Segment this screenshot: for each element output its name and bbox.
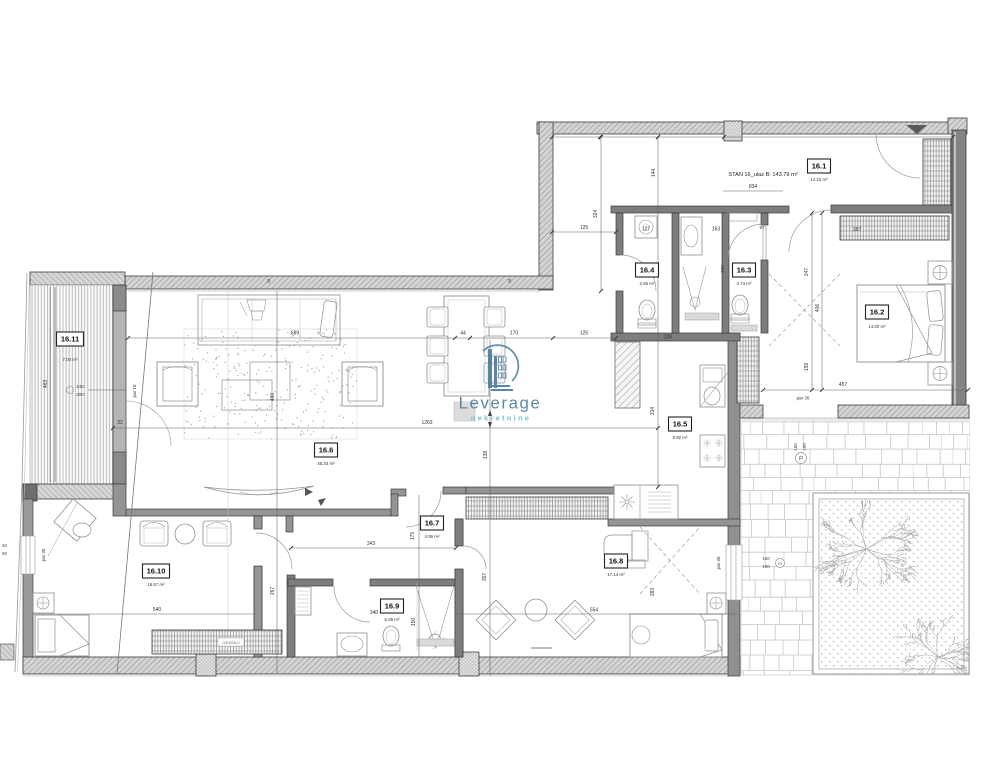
- svg-text:267: 267: [270, 587, 276, 596]
- svg-text:230: 230: [664, 335, 673, 341]
- svg-text:44: 44: [460, 331, 466, 337]
- svg-text:16.57 m²: 16.57 m²: [147, 582, 165, 587]
- svg-text:406: 406: [815, 304, 821, 313]
- svg-text:45.33 m²: 45.33 m²: [317, 461, 335, 466]
- svg-text:387: 387: [853, 227, 862, 233]
- svg-text:1263: 1263: [421, 420, 432, 426]
- svg-text:90: 90: [2, 551, 8, 556]
- svg-text:314: 314: [650, 407, 656, 416]
- svg-text:16.7: 16.7: [425, 519, 440, 528]
- svg-text:14.22 m²: 14.22 m²: [810, 177, 828, 182]
- svg-text:16.9: 16.9: [385, 602, 400, 611]
- svg-text:247: 247: [804, 268, 810, 277]
- svg-text:160: 160: [793, 443, 798, 451]
- svg-text:125: 125: [580, 225, 589, 231]
- svg-text:16.6: 16.6: [319, 446, 334, 455]
- svg-text:324: 324: [593, 210, 599, 219]
- svg-text:28: 28: [266, 278, 271, 283]
- svg-text:357: 357: [482, 573, 488, 582]
- svg-text:283: 283: [650, 588, 656, 597]
- svg-text:7.04 m²: 7.04 m²: [63, 357, 78, 362]
- svg-text:32: 32: [117, 420, 123, 426]
- svg-text:150: 150: [411, 618, 417, 627]
- svg-text:160: 160: [762, 556, 770, 561]
- svg-text:14.00 m²: 14.00 m²: [868, 324, 886, 329]
- svg-text:16.10: 16.10: [147, 567, 166, 576]
- svg-text:170: 170: [510, 331, 519, 337]
- svg-text:2.66 m²: 2.66 m²: [640, 281, 655, 286]
- svg-text:5.08 m²: 5.08 m²: [385, 617, 400, 622]
- svg-text:229: 229: [720, 265, 725, 273]
- svg-text:par 30: par 30: [41, 548, 46, 561]
- svg-text:175: 175: [410, 532, 416, 541]
- svg-text:40: 40: [2, 543, 8, 548]
- svg-text:par 10: par 10: [132, 384, 137, 397]
- svg-text:460: 460: [270, 393, 276, 402]
- svg-text:m: m: [778, 561, 782, 566]
- svg-text:463: 463: [43, 380, 49, 389]
- svg-text:3.74 m²: 3.74 m²: [737, 281, 752, 286]
- svg-text:343: 343: [367, 541, 376, 547]
- svg-text:P: P: [799, 456, 803, 462]
- svg-text:16.4: 16.4: [640, 266, 655, 275]
- svg-text:834: 834: [749, 184, 758, 190]
- svg-text:159: 159: [804, 363, 810, 372]
- svg-text:457: 457: [839, 382, 848, 388]
- svg-text:240: 240: [76, 384, 84, 389]
- svg-text:STAN 16_ulaz B: 143.79 m²: STAN 16_ulaz B: 143.79 m²: [728, 172, 797, 178]
- svg-text:16.8: 16.8: [609, 557, 624, 566]
- svg-text:17.14 m²: 17.14 m²: [607, 572, 625, 577]
- svg-text:nekretnine: nekretnine: [471, 414, 531, 423]
- svg-text:200: 200: [76, 392, 84, 397]
- svg-text:16.1: 16.1: [812, 162, 827, 171]
- svg-text:138: 138: [483, 451, 489, 460]
- svg-text:par 30: par 30: [797, 396, 810, 401]
- svg-text:689: 689: [291, 331, 300, 337]
- svg-text:540: 540: [153, 607, 162, 613]
- svg-text:144: 144: [651, 169, 657, 178]
- svg-text:16.2: 16.2: [870, 308, 885, 317]
- svg-text:par 30: par 30: [716, 556, 721, 569]
- svg-text:127: 127: [642, 227, 651, 233]
- svg-text:28: 28: [507, 278, 512, 283]
- svg-text:190: 190: [762, 564, 770, 569]
- svg-text:16.3: 16.3: [737, 266, 752, 275]
- svg-text:340: 340: [370, 610, 379, 616]
- svg-text:125: 125: [580, 331, 589, 337]
- svg-text:16.5: 16.5: [673, 420, 688, 429]
- svg-text:16.11: 16.11: [61, 335, 79, 344]
- svg-text:OGLEDALO: OGLEDALO: [222, 641, 240, 645]
- svg-text:190: 190: [802, 443, 807, 451]
- svg-text:97: 97: [759, 225, 765, 230]
- svg-text:Leverage: Leverage: [459, 394, 542, 413]
- svg-text:554: 554: [590, 608, 599, 614]
- svg-text:4.99 m²: 4.99 m²: [425, 534, 440, 539]
- svg-text:9.92 m²: 9.92 m²: [673, 435, 688, 440]
- svg-text:163: 163: [712, 227, 721, 233]
